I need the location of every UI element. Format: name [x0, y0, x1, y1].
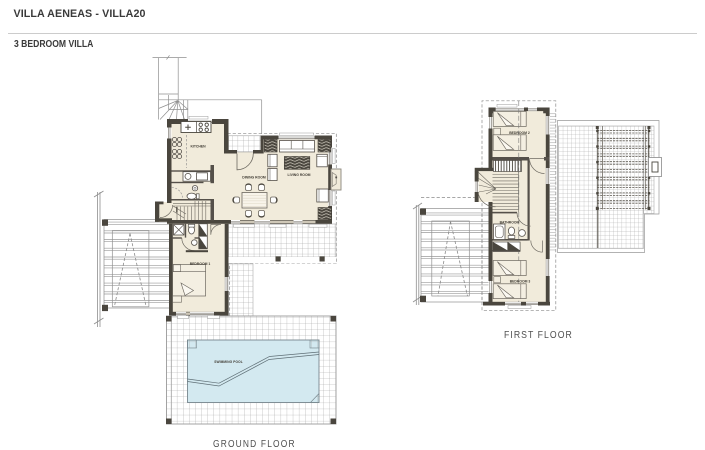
svg-text:SWIMMING POOL: SWIMMING POOL: [214, 360, 243, 364]
svg-text:KITCHEN: KITCHEN: [190, 145, 206, 149]
svg-text:LIVING ROOM: LIVING ROOM: [288, 173, 311, 177]
svg-text:BEDROOM 3: BEDROOM 3: [510, 279, 531, 283]
svg-text:DINING ROOM: DINING ROOM: [242, 175, 266, 179]
svg-text:BATHROOM: BATHROOM: [500, 220, 520, 224]
svg-text:BEDROOM 2: BEDROOM 2: [509, 131, 530, 135]
svg-text:BEDROOM 1: BEDROOM 1: [190, 262, 211, 266]
